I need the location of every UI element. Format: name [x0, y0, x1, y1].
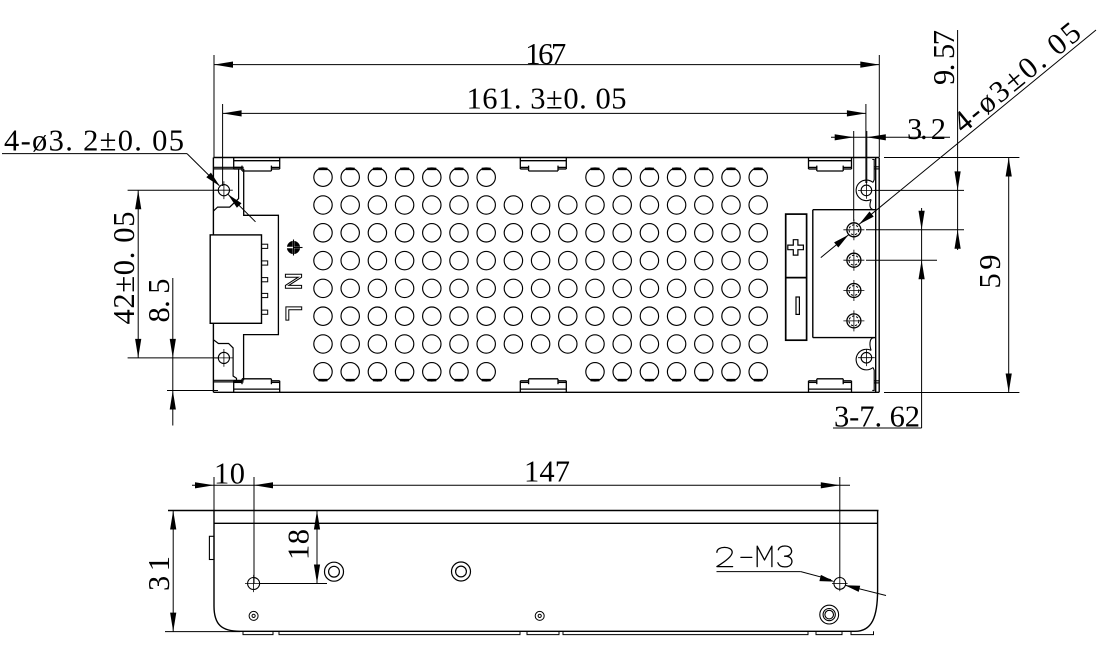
svg-text:167: 167: [525, 37, 566, 71]
svg-text:18: 18: [282, 529, 316, 560]
svg-text:3. 2: 3. 2: [907, 112, 946, 146]
svg-text:10: 10: [214, 457, 245, 491]
svg-text:8. 5: 8. 5: [142, 279, 176, 323]
svg-text:42±0. 05: 42±0. 05: [107, 212, 141, 325]
svg-text:9. 57: 9. 57: [927, 30, 961, 85]
svg-text:147: 147: [524, 455, 570, 489]
svg-text:161. 3±0. 05: 161. 3±0. 05: [467, 82, 627, 116]
